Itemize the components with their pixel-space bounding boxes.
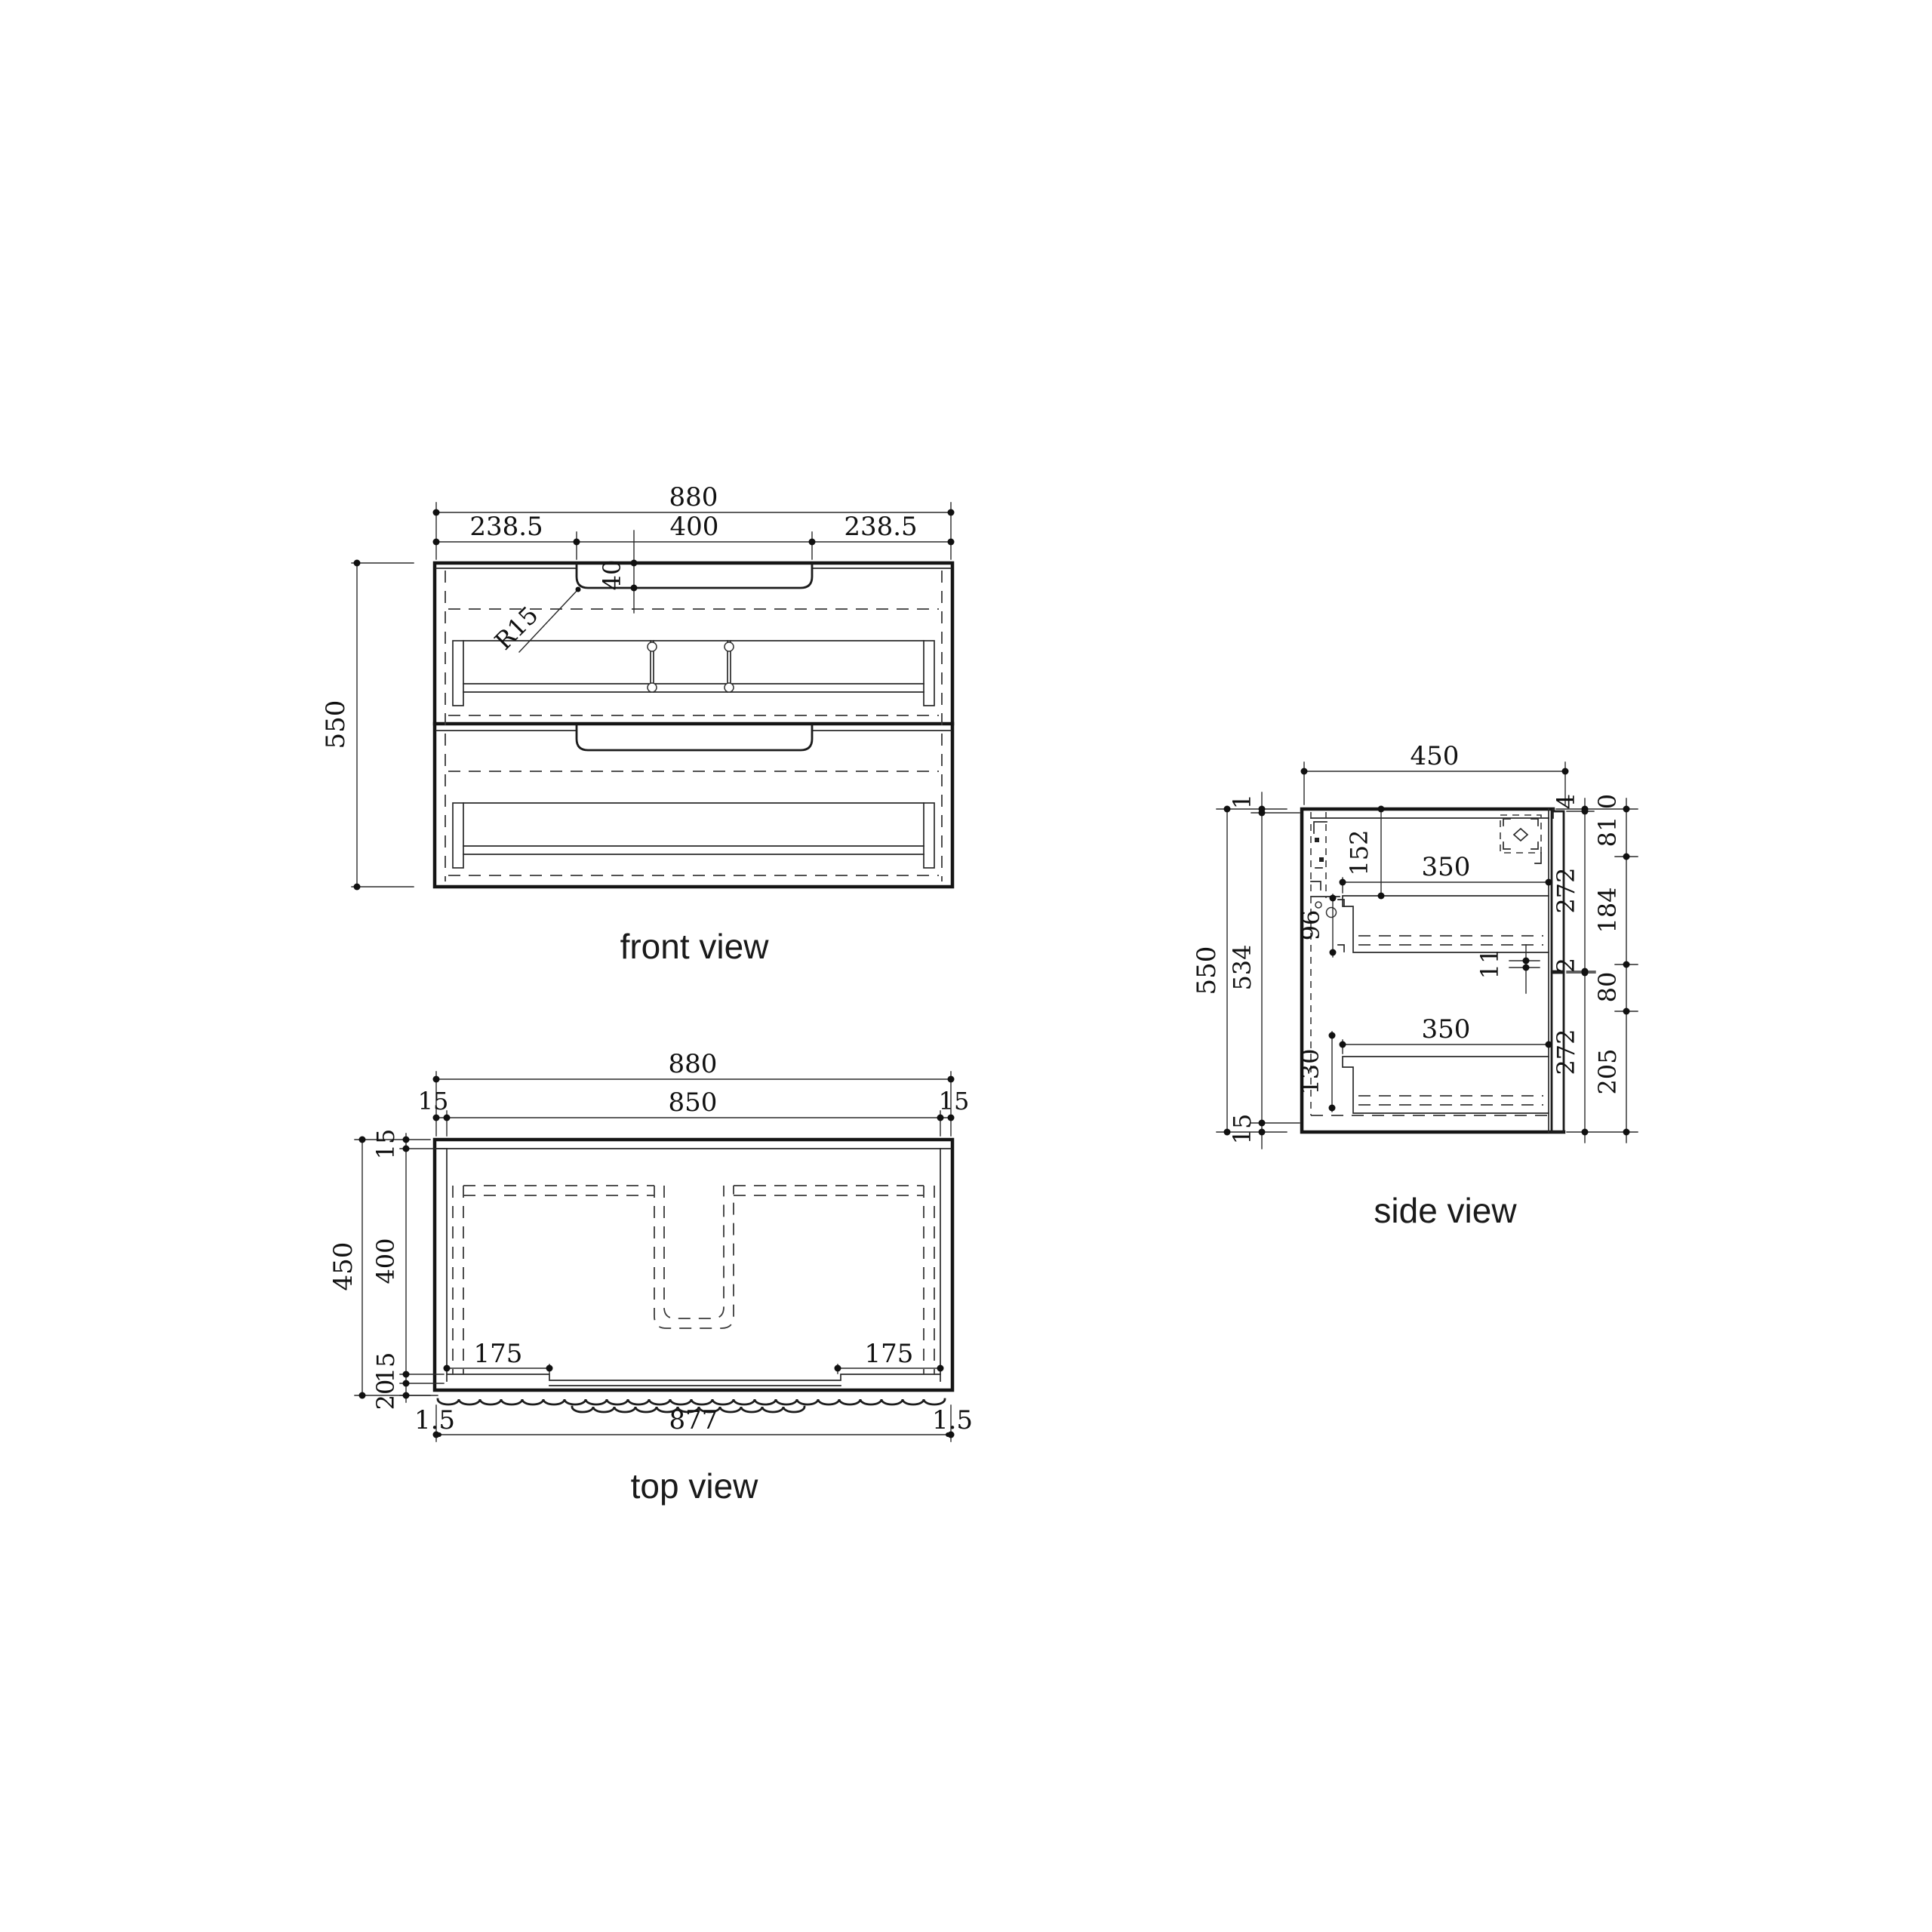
front-view: 880 238.5 400 238.5 40 R15 550 front vie…: [321, 482, 955, 966]
side-dim-front-gap: 2: [1552, 958, 1580, 973]
front-drawer2-box: [453, 803, 934, 868]
side-dim-overall-depth: 450: [1411, 741, 1460, 771]
side-dim-hole-d: 205: [1593, 1048, 1622, 1094]
top-dim-inset-left: 15: [418, 1087, 449, 1115]
front-view-label: front view: [620, 927, 770, 966]
side-view-label: side view: [1374, 1191, 1517, 1230]
front-dim-handle-width: 400: [670, 512, 719, 542]
top-dim-bottom-left: 1.5: [414, 1405, 455, 1435]
top-cabinet-geometry: [435, 1140, 952, 1412]
top-dim-front-panel: 15: [371, 1352, 400, 1383]
top-sink-cutout-inner: [664, 1186, 724, 1318]
front-handle-recess-bottom: [577, 726, 812, 750]
side-dim-bracket-height: 96: [1297, 910, 1325, 941]
drawing-canvas: 880 238.5 400 238.5 40 R15 550 front vie…: [0, 0, 1932, 1932]
side-drawer2-box: [1343, 1057, 1549, 1113]
vanity-technical-drawing: 880 238.5 400 238.5 40 R15 550 front vie…: [0, 0, 1932, 1932]
side-view: 450 550 1 534 15 152 96 350 350 130 11 4…: [1192, 741, 1638, 1230]
top-view: 880 850 15 15 450 15 400 15 20 175 175 1…: [328, 1049, 973, 1506]
side-dim-bottom-panel: 15: [1228, 1114, 1257, 1145]
side-dim-bracket-offset: 152: [1345, 829, 1374, 875]
side-dimensions: [1217, 762, 1638, 1149]
side-dim-drawer1-depth: 350: [1422, 852, 1471, 882]
top-dim-bottom-right: 1.5: [932, 1405, 973, 1435]
top-view-label: top view: [631, 1466, 759, 1506]
side-dim-overall-height: 550: [1192, 946, 1222, 995]
top-dim-inset-right: 15: [939, 1087, 970, 1115]
front-dim-left-offset: 238.5: [469, 512, 543, 542]
top-sink-cutout-outer: [654, 1186, 734, 1328]
side-dim-hole-zero: 0: [1593, 794, 1622, 809]
side-dim-drawer2-depth: 350: [1422, 1014, 1471, 1044]
front-dim-right-offset: 238.5: [844, 512, 917, 542]
top-dim-inner-width: 850: [669, 1088, 718, 1118]
top-dim-overall-width: 880: [669, 1049, 718, 1079]
top-dim-front-overhang: 20: [371, 1380, 400, 1411]
top-dim-right-step: 175: [865, 1339, 914, 1369]
side-slide-fitting-detail: [1500, 815, 1541, 863]
top-dim-overall-depth: 450: [328, 1242, 358, 1291]
side-dim-front2-height: 272: [1552, 1029, 1580, 1075]
top-dim-left-step: 175: [474, 1339, 523, 1369]
top-dim-back-panel: 15: [371, 1129, 400, 1160]
side-drawer1-box: [1343, 896, 1549, 952]
side-dim-runner-offset: 130: [1296, 1048, 1324, 1094]
side-dim-inner-height: 534: [1228, 944, 1257, 990]
top-front-step-line: [447, 1374, 940, 1380]
side-dim-hole-b: 184: [1593, 887, 1622, 933]
front-dim-overall-height: 550: [321, 700, 351, 749]
front-dim-overall-width: 880: [669, 482, 718, 512]
side-dim-front1-height: 272: [1552, 867, 1580, 913]
front-dimensions: [352, 503, 955, 891]
top-dim-inner-depth: 400: [371, 1238, 400, 1284]
front-dim-handle-depth: 40: [598, 560, 626, 591]
side-dim-front-top-gap: 4: [1552, 794, 1580, 809]
top-break-wavy-line: [438, 1399, 945, 1404]
side-dim-top-gap: 1: [1228, 794, 1257, 809]
side-dim-clearance: 11: [1475, 949, 1504, 980]
front-drawer1-box: [453, 641, 934, 706]
side-dim-hole-c: 80: [1593, 972, 1622, 1003]
side-dim-hole-a: 81: [1593, 817, 1622, 848]
top-dim-bottom-width: 877: [669, 1405, 718, 1435]
